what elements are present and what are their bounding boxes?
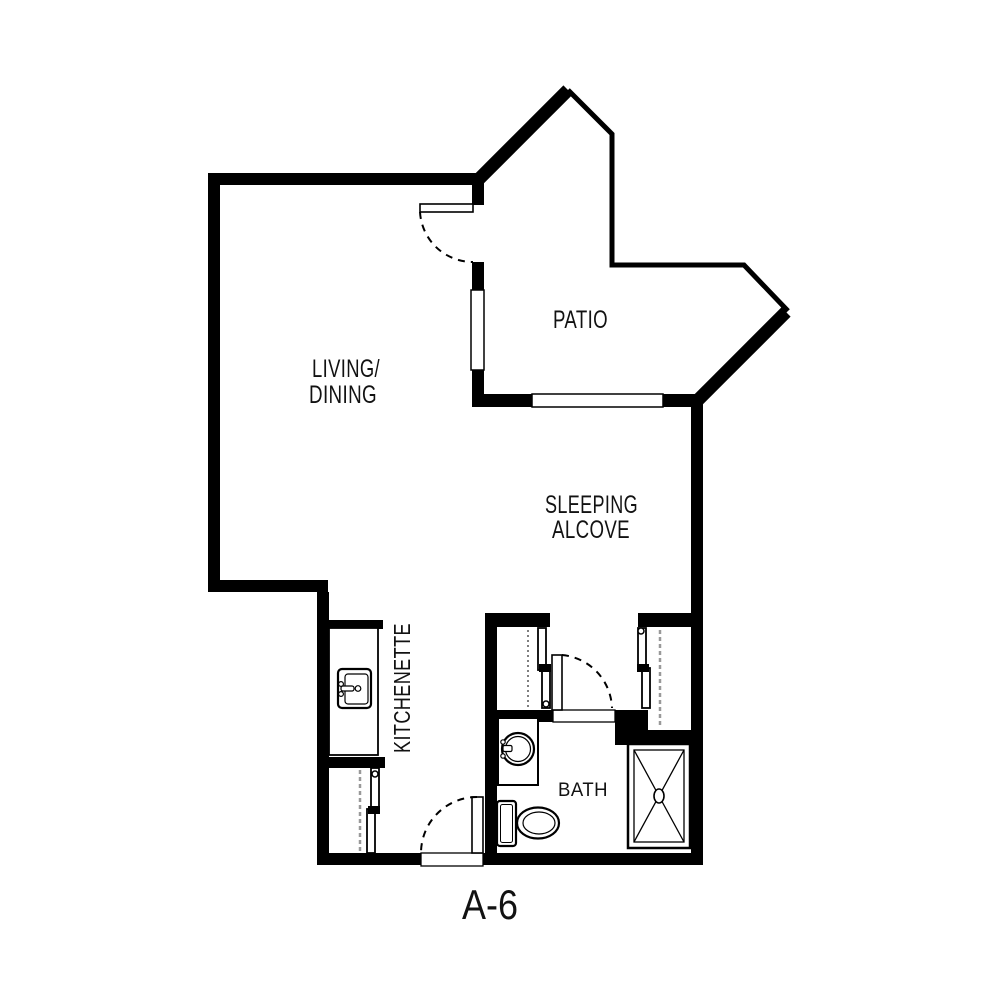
patio-label: PATIO [553, 306, 608, 334]
kitchenette-counter [329, 628, 378, 755]
window-patio-left [471, 290, 484, 370]
sleeping-alcove-label-line1: SLEEPING [545, 491, 638, 519]
closet-door-overlap [368, 806, 380, 814]
living-dining-label-line2: DINING [309, 381, 377, 409]
entry-door-leaf [472, 797, 483, 853]
closet-door-panel [642, 668, 650, 708]
bath-left-wall [485, 613, 497, 865]
faucet-tap [355, 686, 361, 692]
patio-bottom-wall-seg1 [472, 394, 532, 407]
faucet-handle [339, 692, 344, 697]
wall-top [208, 173, 483, 185]
window-patio-bottom [532, 394, 663, 407]
closet-door-overlap [637, 664, 649, 672]
patio-left-wall-seg2 [472, 262, 484, 290]
faucet-handle [501, 740, 505, 744]
kitchenette-label: KITCHENETTE [389, 623, 415, 753]
closet-door-knob [372, 771, 378, 777]
entry-door-threshold [421, 853, 483, 866]
patio-door-leaf [420, 204, 473, 212]
bath-door-leaf [552, 655, 562, 710]
hall-closet-left-top-wall [485, 613, 550, 627]
kitchen-sink-icon [338, 669, 371, 708]
closet-door-knob [543, 701, 549, 707]
sleeping-alcove-label-line2: ALCOVE [552, 516, 630, 544]
wall-bottom-right [483, 853, 703, 865]
faucet-handle [501, 754, 505, 758]
wall-left-upper [208, 173, 220, 592]
faucet-spout [341, 686, 354, 691]
closet-door-knob [638, 628, 644, 634]
faucet-spout [503, 746, 512, 752]
wall-bottom-left [317, 853, 422, 865]
wall-right [691, 398, 703, 865]
toilet-tank-inner [501, 805, 513, 843]
closet-door-panel [367, 809, 375, 853]
bath-door-threshold [553, 710, 615, 722]
living-dining-label-line1: LIVING/ [312, 355, 380, 383]
wall-left-lower [317, 592, 329, 865]
shower-drain [654, 789, 664, 803]
closet-door-panel [538, 628, 546, 670]
closet-door-overlap [539, 664, 551, 672]
hall-closet-right-top-wall [638, 613, 703, 627]
kitchenette-mid-wall [317, 757, 385, 768]
patio-left-wall-seg3 [472, 370, 484, 394]
unit-plan-label: A-6 [462, 881, 518, 928]
shower-icon [628, 744, 690, 848]
floor-plan-drawing: LIVING/ DINING PATIO SLEEPING ALCOVE KIT… [0, 0, 1000, 1000]
bathroom-vanity-sink-icon [498, 718, 538, 785]
wall-step-bottom [208, 580, 328, 592]
floor-plan-page: LIVING/ DINING PATIO SLEEPING ALCOVE KIT… [0, 0, 1000, 1000]
bath-label: BATH [558, 780, 608, 801]
toilet-bowl-inner [523, 812, 555, 834]
